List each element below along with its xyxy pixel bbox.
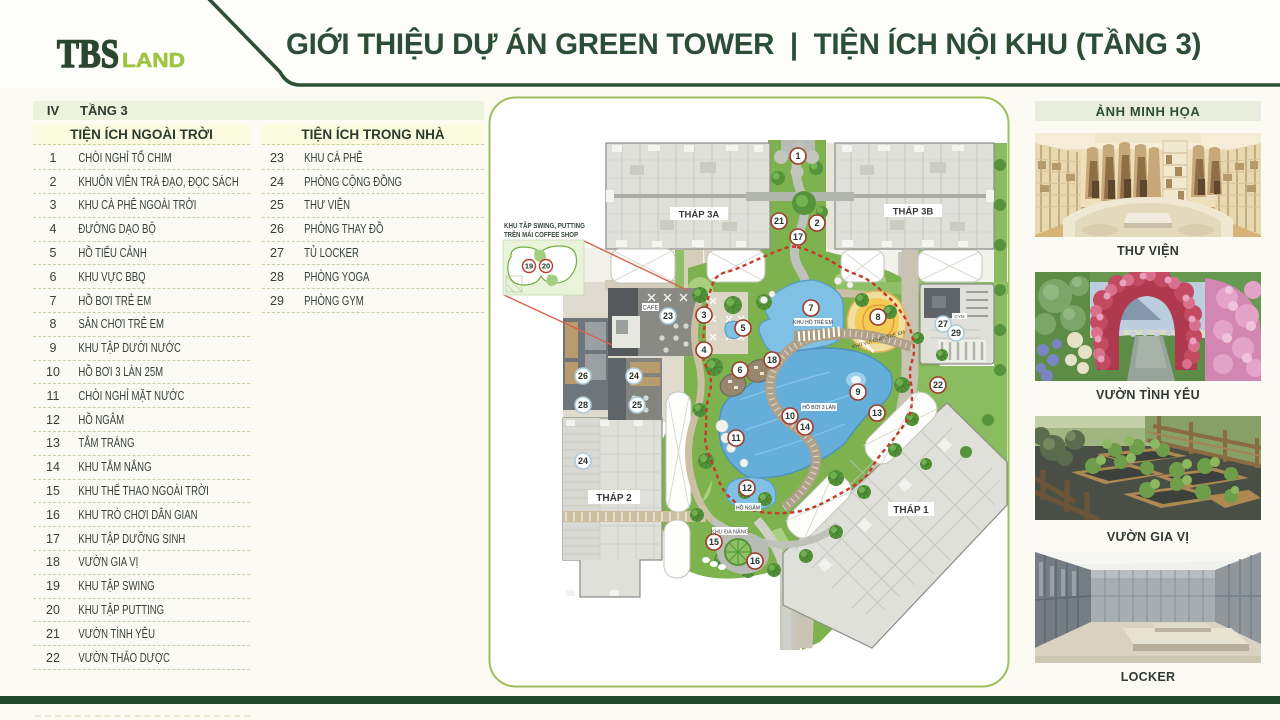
svg-text:6: 6 <box>737 365 742 375</box>
svg-text:THÁP 1: THÁP 1 <box>893 503 929 516</box>
svg-text:27: 27 <box>938 319 948 329</box>
svg-text:TBS: TBS <box>57 31 119 75</box>
svg-text:11: 11 <box>731 433 741 443</box>
svg-text:THÁP 2: THÁP 2 <box>596 491 632 504</box>
svg-text:THÁP 3A: THÁP 3A <box>679 210 720 221</box>
svg-text:HỒ NGÂM: HỒ NGÂM <box>736 505 760 512</box>
svg-text:9: 9 <box>855 387 860 397</box>
svg-text:8: 8 <box>875 312 880 322</box>
svg-text:12: 12 <box>742 483 752 493</box>
svg-text:CAFE: CAFE <box>642 306 658 312</box>
svg-text:29: 29 <box>951 328 961 338</box>
svg-text:KHU HỒ TRẺ EM: KHU HỒ TRẺ EM <box>793 319 833 326</box>
svg-text:18: 18 <box>767 355 777 365</box>
svg-text:LAND: LAND <box>122 49 185 72</box>
svg-text:16: 16 <box>750 556 760 566</box>
svg-text:17: 17 <box>793 232 803 242</box>
svg-text:14: 14 <box>800 422 810 432</box>
svg-text:5: 5 <box>740 323 745 333</box>
svg-text:GYM: GYM <box>954 314 965 319</box>
svg-text:10: 10 <box>785 411 795 421</box>
svg-text:26: 26 <box>578 371 588 381</box>
svg-text:19: 19 <box>525 261 533 270</box>
svg-text:THÁP 3B: THÁP 3B <box>893 207 934 218</box>
svg-text:24: 24 <box>629 371 639 381</box>
svg-text:2: 2 <box>814 218 819 228</box>
svg-text:25: 25 <box>632 400 642 410</box>
svg-text:20: 20 <box>542 261 550 270</box>
svg-text:23: 23 <box>663 311 673 321</box>
svg-text:7: 7 <box>808 303 813 313</box>
svg-text:1: 1 <box>795 151 800 161</box>
svg-text:22: 22 <box>933 380 943 390</box>
svg-text:15: 15 <box>709 537 719 547</box>
svg-text:24: 24 <box>578 456 588 466</box>
svg-text:28: 28 <box>578 400 588 410</box>
svg-text:HỒ BƠI 3 LÀN: HỒ BƠI 3 LÀN <box>802 404 836 411</box>
svg-text:KHU TẬP SWING, PUTTING: KHU TẬP SWING, PUTTING <box>504 221 585 230</box>
svg-text:13: 13 <box>872 408 882 418</box>
svg-text:21: 21 <box>774 216 784 226</box>
svg-text:TRÊN MÁI COFFEE SHOP: TRÊN MÁI COFFEE SHOP <box>504 230 578 239</box>
svg-text:3: 3 <box>701 310 706 320</box>
svg-text:4: 4 <box>701 345 706 355</box>
